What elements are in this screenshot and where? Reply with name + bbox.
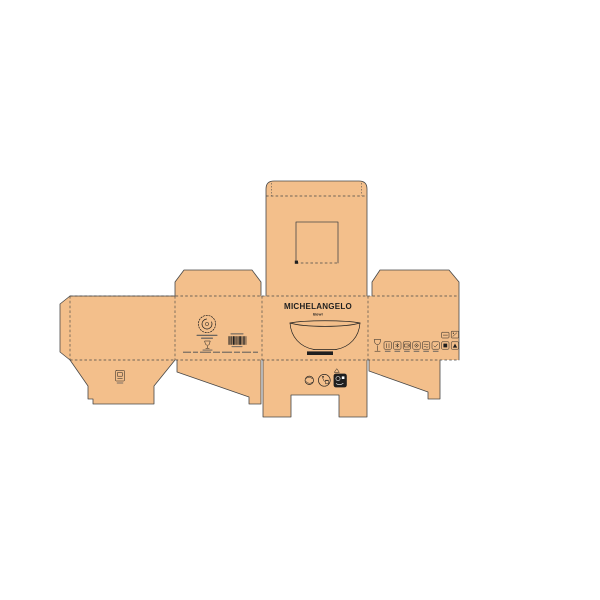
large-left-panel — [70, 296, 175, 360]
brand-subtitle: Bowl — [313, 313, 323, 317]
glue-flap — [60, 296, 70, 360]
logo-caption-line — [201, 338, 213, 339]
packaging-dieline-canvas: MICHELANGELO Bowl — [0, 0, 600, 600]
award-caption-line — [203, 350, 213, 351]
logo-caption-line — [197, 335, 218, 336]
tuck-flap — [266, 181, 367, 196]
left-side-panel — [175, 296, 262, 360]
brand-title: MICHELANGELO — [284, 302, 352, 311]
bowl-base — [307, 351, 333, 355]
large-left-bottom-flap — [70, 360, 175, 404]
black-certification-badge-icon — [334, 374, 347, 388]
back-panel — [266, 196, 367, 296]
front-bottom-flap — [263, 360, 367, 417]
left-bottom-dust-flap — [177, 360, 261, 404]
right-top-flap — [372, 270, 459, 296]
left-top-flap — [175, 270, 261, 296]
small-certification-caption — [117, 383, 123, 384]
window-corner-mark — [295, 261, 298, 264]
right-side-panel — [368, 296, 459, 360]
right-bottom-dust-flap — [369, 360, 440, 399]
box-dieline: MICHELANGELO Bowl — [0, 0, 600, 600]
